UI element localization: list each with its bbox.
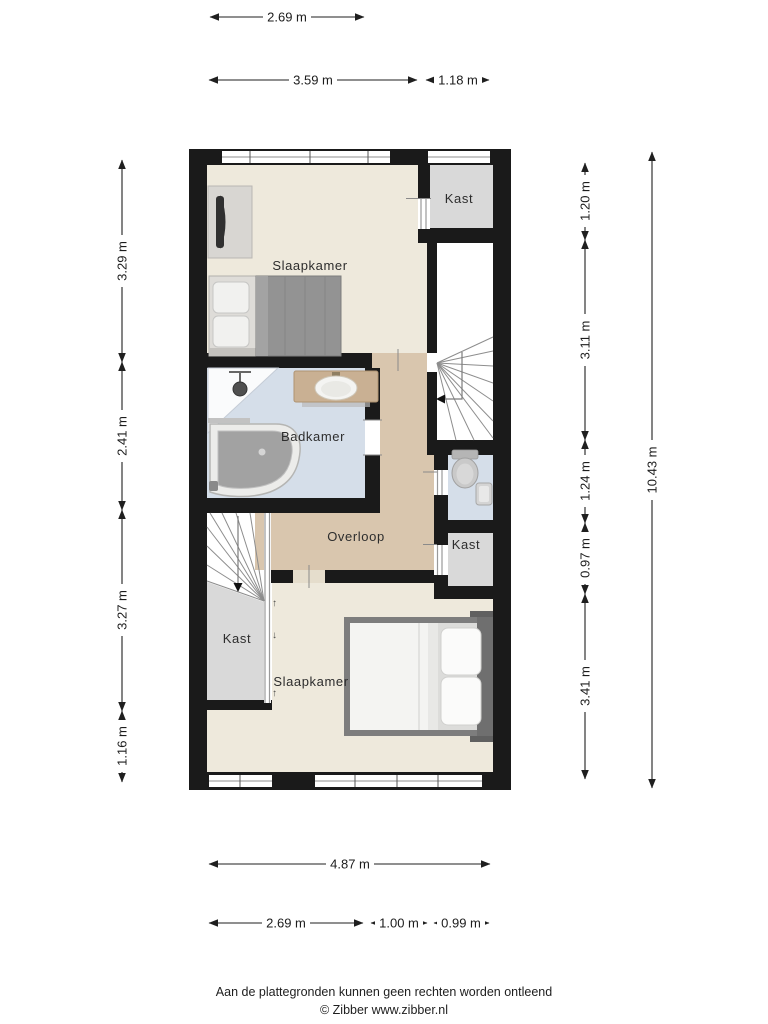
arrow-down-symbol: ↓ (272, 630, 277, 641)
duvet (350, 623, 438, 730)
wall-toilet-left-lower (434, 495, 448, 520)
dim-label: 3.27 m (115, 590, 130, 630)
dim-left-4: 1.16 m (114, 711, 130, 782)
dim-label: 1.00 m (379, 916, 419, 931)
vanity-sink (294, 371, 378, 407)
pillow (441, 628, 481, 675)
dim-label: 1.20 m (578, 181, 593, 221)
wall-bathroom-bottom (189, 498, 380, 513)
label-kast-right: Kast (452, 537, 480, 552)
duvet (256, 276, 341, 356)
wall-stairwell-lower (427, 372, 437, 440)
dim-label: 3.29 m (115, 241, 130, 281)
bath-shelf (208, 418, 250, 423)
footer-disclaimer: Aan de plattegronden kunnen geen rechten… (216, 985, 552, 999)
partition-closet-bottom-left (264, 513, 271, 703)
window-bottom-bedroom (315, 775, 482, 787)
bathtub-faucet (209, 481, 218, 491)
dim-bottom-2b: 1.00 m (371, 915, 427, 931)
dim-top-2b: 1.18 m (426, 72, 489, 88)
arrow-up-symbol: ↑ (272, 598, 277, 609)
toilet-seat (457, 464, 474, 485)
wall-toilet-left-upper (434, 455, 448, 470)
dim-label: 2.69 m (267, 10, 307, 25)
door-bathroom (363, 420, 382, 455)
wall-stairwell-upper (427, 243, 437, 353)
floorplan-drawing: ↑ ↓ ↑ Slaapkamer Kast Badkamer Overloop … (0, 0, 768, 1024)
dim-bottom-1: 4.87 m (209, 856, 490, 872)
window-top-bedroom (222, 151, 390, 163)
wall-toilet-closet (434, 520, 493, 533)
bed-single (209, 276, 341, 356)
floor-plan: ↑ ↓ ↑ Slaapkamer Kast Badkamer Overloop … (189, 149, 511, 790)
dim-right-1: 1.20 m (577, 163, 593, 240)
pillow (441, 677, 481, 725)
dim-left-2: 2.41 m (114, 362, 130, 510)
dim-label: 1.18 m (438, 73, 478, 88)
dim-bottom-2c: 0.99 m (434, 915, 489, 931)
label-kast-bottom-left: Kast (223, 631, 251, 646)
window-bottom-left (209, 775, 272, 787)
dim-bottom-2a: 2.69 m (209, 915, 363, 931)
dim-total-height: 10.43 m (644, 152, 660, 788)
label-badkamer: Badkamer (281, 429, 345, 444)
bathtub-highlight (259, 449, 266, 456)
dim-top-1: 2.69 m (210, 9, 364, 25)
floorplan-page: ↑ ↓ ↑ Slaapkamer Kast Badkamer Overloop … (0, 0, 768, 1024)
wall-closet-right-left-upper (434, 533, 448, 545)
arrow-up-symbol: ↑ (272, 688, 277, 699)
wall-closet-bottom-left-bottom (207, 700, 272, 710)
footer: Aan de plattegronden kunnen geen rechten… (216, 985, 552, 1017)
bed-double (344, 611, 493, 742)
dim-label: 0.99 m (441, 916, 481, 931)
dresser (208, 186, 252, 258)
dim-label: 1.24 m (578, 461, 593, 501)
wall-closet-top-left-upper (418, 165, 430, 200)
dim-label: 4.87 m (330, 857, 370, 872)
dim-left-1: 3.29 m (114, 160, 130, 362)
dim-right-4: 0.97 m (577, 523, 593, 594)
dim-label: 3.59 m (293, 73, 333, 88)
dim-label: 3.41 m (578, 666, 593, 706)
label-slaapkamer-bottom: Slaapkamer (273, 674, 348, 689)
corner-sink-basin (479, 486, 489, 502)
dim-label: 1.16 m (115, 726, 130, 766)
dim-label: 0.97 m (578, 538, 593, 578)
dim-label: 3.11 m (578, 321, 593, 360)
window-top-closet (428, 151, 490, 163)
wall-landing-bedroom-a (268, 570, 293, 583)
dim-right-2: 3.11 m (577, 240, 593, 440)
dim-right-3: 1.24 m (577, 440, 593, 523)
dim-label: 2.69 m (266, 916, 306, 931)
label-slaapkamer-top: Slaapkamer (272, 258, 347, 273)
label-overloop: Overloop (327, 529, 385, 544)
wall-closet-right-bottom (434, 586, 493, 599)
dim-left-3: 3.27 m (114, 510, 130, 711)
footer-copyright: © Zibber www.zibber.nl (320, 1003, 448, 1017)
shower-head (233, 382, 247, 396)
pillow (213, 316, 249, 347)
pillow (213, 282, 249, 313)
dim-label: 2.41 m (115, 416, 130, 456)
label-kast-top-right: Kast (445, 191, 473, 206)
dim-top-2a: 3.59 m (209, 72, 417, 88)
dim-right-5: 3.41 m (577, 594, 593, 779)
dim-label: 10.43 m (645, 447, 660, 494)
wall-landing-bedroom-b (325, 570, 437, 583)
wall-below-closet-top (418, 228, 493, 243)
